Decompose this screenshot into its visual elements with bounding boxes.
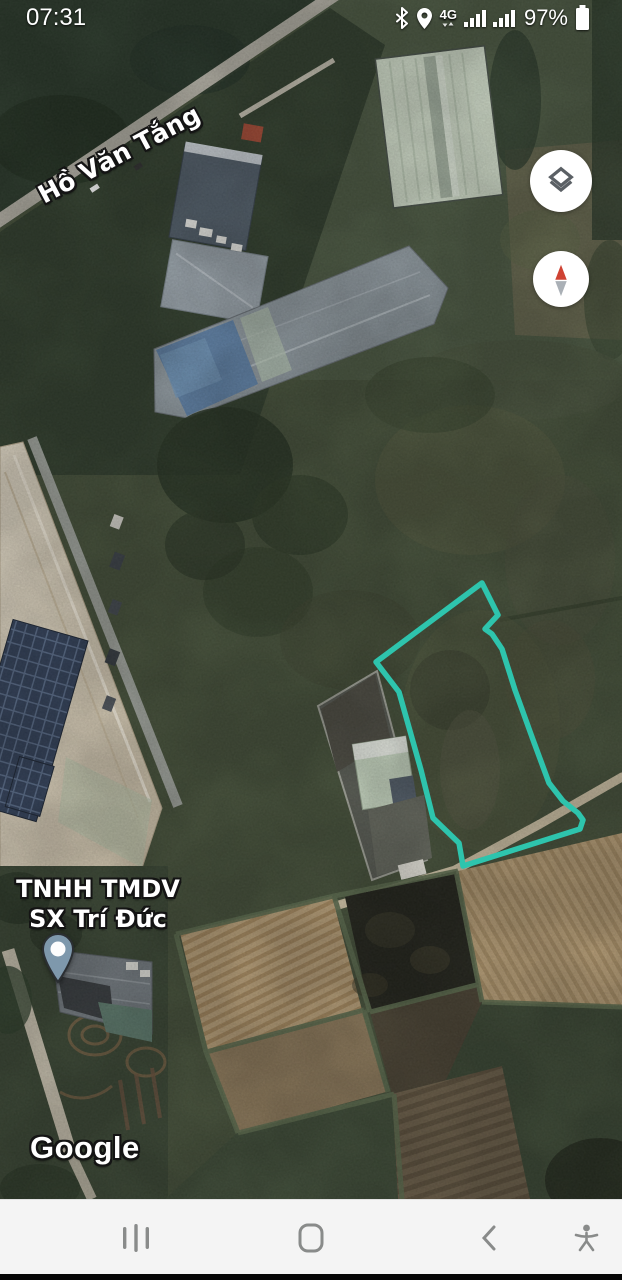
layers-icon <box>541 161 581 201</box>
status-bar: 07:31 4G 97% <box>0 0 622 36</box>
google-attribution: Google <box>30 1130 140 1166</box>
phone-screen: Hồ Văn Tắng TNHH TMDV SX Trí Đức Google … <box>0 0 622 1280</box>
place-label[interactable]: TNHH TMDV SX Trí Đức <box>14 874 182 934</box>
signal-strength-icon <box>464 9 486 27</box>
battery-icon <box>575 5 590 31</box>
status-icons: 4G 97% <box>395 0 590 36</box>
map-canvas[interactable]: Hồ Văn Tắng TNHH TMDV SX Trí Đức Google <box>0 0 622 1199</box>
status-time: 07:31 <box>26 4 86 32</box>
home-button[interactable] <box>281 1200 341 1275</box>
place-label-line2: SX Trí Đức <box>14 904 182 934</box>
compass-icon <box>541 259 581 299</box>
recent-apps-button[interactable] <box>106 1200 166 1275</box>
data-arrows-icon <box>442 21 454 28</box>
place-label-line1: TNHH TMDV <box>14 874 182 904</box>
back-button[interactable] <box>459 1200 519 1275</box>
signal-strength-icon <box>493 9 515 27</box>
place-pin-icon[interactable] <box>40 932 76 988</box>
layers-button[interactable] <box>530 150 592 212</box>
navigation-bar <box>0 1199 622 1274</box>
compass-button[interactable] <box>533 251 589 307</box>
bluetooth-icon <box>395 6 409 30</box>
accessibility-button[interactable] <box>564 1200 608 1275</box>
recent-apps-icon <box>123 1224 149 1252</box>
battery-percent-label: 97% <box>524 5 568 31</box>
network-type-label: 4G <box>440 8 457 21</box>
accessibility-icon <box>573 1224 600 1252</box>
location-icon <box>416 7 433 30</box>
screen-bottom-edge <box>0 1274 622 1280</box>
mobile-data-4g-icon: 4G <box>440 8 457 28</box>
back-icon <box>481 1225 497 1251</box>
home-icon <box>298 1223 324 1253</box>
